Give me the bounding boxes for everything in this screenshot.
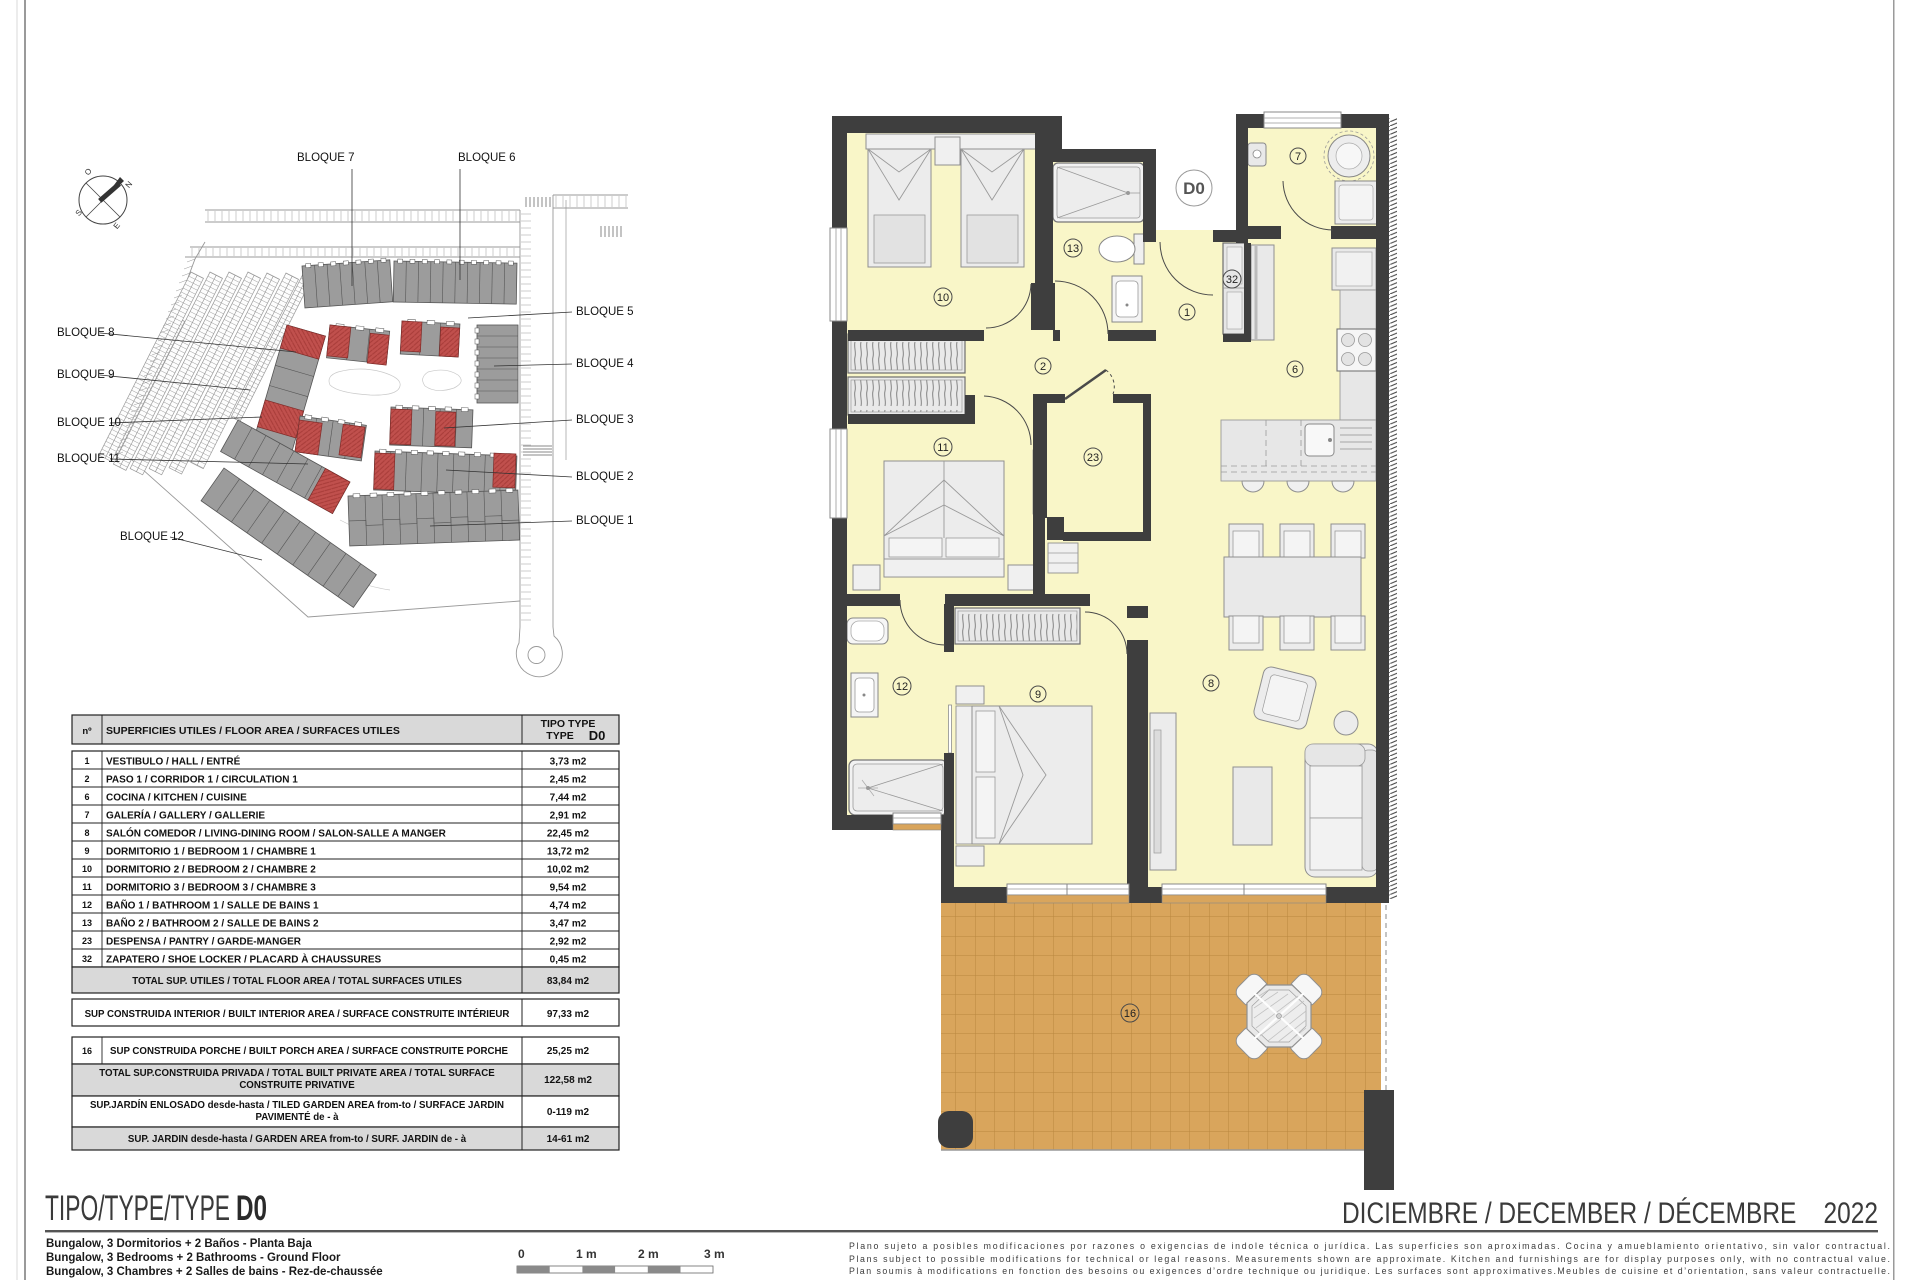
svg-text:SUP CONSTRUIDA PORCHE / BUILT: SUP CONSTRUIDA PORCHE / BUILT PORCH AREA… (110, 1046, 508, 1057)
svg-text:BLOQUE 12: BLOQUE 12 (120, 531, 184, 543)
svg-text:97,33 m2: 97,33 m2 (547, 1009, 590, 1020)
svg-text:1 m: 1 m (576, 1247, 597, 1261)
svg-text:DORMITORIO 2 / BEDROOM 2 / CHA: DORMITORIO 2 / BEDROOM 2 / CHAMBRE 2 (106, 865, 316, 876)
svg-text:7: 7 (84, 810, 89, 820)
svg-text:BLOQUE 8: BLOQUE 8 (57, 327, 115, 339)
svg-text:12: 12 (896, 681, 908, 693)
svg-text:BLOQUE 2: BLOQUE 2 (576, 471, 634, 483)
svg-text:TIPO TYPE: TIPO TYPE (541, 718, 596, 730)
svg-text:2,92 m2: 2,92 m2 (550, 937, 587, 948)
svg-text:Plans subject to possible modi: Plans subject to possible modifications … (849, 1254, 1890, 1264)
svg-text:9: 9 (84, 846, 89, 856)
svg-text:SUPERFICIES UTILES / FLOOR ARE: SUPERFICIES UTILES / FLOOR AREA / SURFAC… (106, 725, 400, 737)
svg-text:Bungalow, 3 Bedrooms + 2 Bathr: Bungalow, 3 Bedrooms + 2 Bathrooms - Gro… (46, 1252, 341, 1264)
svg-text:13: 13 (82, 918, 92, 928)
svg-text:9: 9 (1035, 689, 1041, 701)
svg-text:BLOQUE 7: BLOQUE 7 (297, 152, 355, 164)
svg-text:122,58 m2: 122,58 m2 (544, 1075, 592, 1086)
svg-text:4,74 m2: 4,74 m2 (550, 901, 587, 912)
svg-text:nº: nº (82, 726, 92, 737)
svg-text:BLOQUE 6: BLOQUE 6 (458, 152, 516, 164)
svg-text:COCINA / KITCHEN / CUISINE: COCINA / KITCHEN / CUISINE (106, 793, 247, 804)
svg-text:PASO 1 / CORRIDOR 1 / CIRCULAT: PASO 1 / CORRIDOR 1 / CIRCULATION 1 (106, 775, 298, 786)
svg-text:23: 23 (82, 936, 92, 946)
svg-text:D0: D0 (236, 1189, 267, 1228)
svg-text:11: 11 (82, 882, 92, 892)
svg-text:D0: D0 (1183, 179, 1205, 198)
svg-text:BLOQUE 4: BLOQUE 4 (576, 358, 634, 370)
svg-text:83,84 m2: 83,84 m2 (547, 976, 590, 987)
svg-text:16: 16 (82, 1046, 92, 1056)
svg-text:2 m: 2 m (638, 1247, 659, 1261)
svg-text:25,25 m2: 25,25 m2 (547, 1046, 590, 1057)
svg-text:BLOQUE 5: BLOQUE 5 (576, 306, 634, 318)
svg-text:SUP CONSTRUIDA INTERIOR / BUIL: SUP CONSTRUIDA INTERIOR / BUILT INTERIOR… (85, 1009, 510, 1020)
svg-text:Bungalow, 3 Chambres + 2 Salle: Bungalow, 3 Chambres + 2 Salles de bains… (46, 1266, 383, 1278)
svg-text:16: 16 (1124, 1008, 1136, 1020)
svg-text:8: 8 (84, 828, 89, 838)
svg-text:6: 6 (84, 792, 89, 802)
svg-text:DORMITORIO 1 / BEDROOM 1 / CHA: DORMITORIO 1 / BEDROOM 1 / CHAMBRE 1 (106, 847, 316, 858)
svg-text:7: 7 (1295, 151, 1301, 163)
svg-text:8: 8 (1208, 678, 1214, 690)
svg-text:0: 0 (518, 1247, 525, 1261)
svg-text:12: 12 (82, 900, 92, 910)
svg-text:2,45 m2: 2,45 m2 (550, 775, 587, 786)
svg-text:7,44 m2: 7,44 m2 (550, 793, 587, 804)
svg-text:VESTIBULO / HALL / ENTRÉ: VESTIBULO / HALL / ENTRÉ (106, 755, 241, 768)
svg-text:BLOQUE 3: BLOQUE 3 (576, 414, 634, 426)
svg-text:Bungalow, 3 Dormitorios + 2 Ba: Bungalow, 3 Dormitorios + 2 Baños - Plan… (46, 1238, 312, 1250)
svg-text:TIPO/TYPE/TYPE: TIPO/TYPE/TYPE (45, 1189, 230, 1228)
svg-text:0-119 m2: 0-119 m2 (547, 1107, 590, 1118)
svg-text:BAÑO 1 / BATHROOM 1 / SALLE DE: BAÑO 1 / BATHROOM 1 / SALLE DE BAINS 1 (106, 899, 319, 912)
svg-text:SALÓN COMEDOR / LIVING-DINING: SALÓN COMEDOR / LIVING-DINING ROOM / SAL… (106, 827, 447, 840)
svg-text:DORMITORIO 3 / BEDROOM 3 / CHA: DORMITORIO 3 / BEDROOM 3 / CHAMBRE 3 (106, 883, 316, 894)
svg-text:BLOQUE 11: BLOQUE 11 (57, 453, 120, 465)
svg-text:SUP. JARDIN desde-hasta / GARD: SUP. JARDIN desde-hasta / GARDEN AREA fr… (128, 1134, 467, 1145)
svg-text:14-61 m2: 14-61 m2 (547, 1134, 590, 1145)
svg-text:13: 13 (1067, 243, 1079, 255)
svg-text:0,45 m2: 0,45 m2 (550, 955, 587, 966)
svg-text:1: 1 (84, 756, 89, 766)
svg-text:32: 32 (82, 954, 92, 964)
svg-text:D0: D0 (589, 728, 606, 743)
svg-text:ZAPATERO / SHOE LOCKER / PLACA: ZAPATERO / SHOE LOCKER / PLACARD À CHAUS… (106, 953, 382, 966)
svg-text:9,54 m2: 9,54 m2 (550, 883, 587, 894)
svg-text:BLOQUE 10: BLOQUE 10 (57, 417, 121, 429)
svg-text:22,45 m2: 22,45 m2 (547, 829, 590, 840)
svg-text:3,73 m2: 3,73 m2 (550, 757, 587, 768)
svg-text:1: 1 (1184, 307, 1190, 319)
svg-text:BLOQUE 1: BLOQUE 1 (576, 515, 634, 527)
svg-text:Plan soumis à modifications en: Plan soumis à modifications en fonction … (849, 1266, 1890, 1276)
svg-text:10: 10 (937, 292, 949, 304)
svg-text:TYPE: TYPE (546, 730, 573, 742)
svg-text:SUP.JARDÍN ENLOSADO desde-hast: SUP.JARDÍN ENLOSADO desde-hasta / TILED … (90, 1100, 504, 1111)
svg-text:13,72 m2: 13,72 m2 (547, 847, 590, 858)
svg-text:2: 2 (1040, 361, 1046, 373)
svg-text:GALERÍA / GALLERY / GALLERIE: GALERÍA / GALLERY / GALLERIE (106, 809, 265, 822)
svg-text:DESPENSA / PANTRY / GARDE-MANG: DESPENSA / PANTRY / GARDE-MANGER (106, 937, 302, 948)
svg-text:6: 6 (1292, 364, 1298, 376)
svg-text:32: 32 (1226, 274, 1238, 286)
svg-text:10,02 m2: 10,02 m2 (547, 865, 590, 876)
svg-text:BLOQUE 9: BLOQUE 9 (57, 369, 115, 381)
svg-text:2,91 m2: 2,91 m2 (550, 811, 587, 822)
svg-text:CONSTRUITE PRIVATIVE: CONSTRUITE PRIVATIVE (239, 1080, 355, 1091)
svg-text:11: 11 (937, 442, 948, 454)
svg-text:BAÑO 2 / BATHROOM 2 / SALLE DE: BAÑO 2 / BATHROOM 2 / SALLE DE BAINS 2 (106, 917, 319, 930)
svg-text:PAVIMENTÉ de - à: PAVIMENTÉ de - à (255, 1112, 339, 1123)
svg-text:10: 10 (82, 864, 92, 874)
svg-text:3 m: 3 m (704, 1247, 725, 1261)
svg-text:TOTAL SUP.CONSTRUIDA PRIVADA /: TOTAL SUP.CONSTRUIDA PRIVADA / TOTAL BUI… (99, 1068, 495, 1079)
svg-text:23: 23 (1087, 452, 1099, 464)
svg-text:DICIEMBRE / DECEMBER / DÉCEMBR: DICIEMBRE / DECEMBER / DÉCEMBRE 2022 (1342, 1197, 1878, 1230)
svg-text:3,47 m2: 3,47 m2 (550, 919, 587, 930)
svg-text:2: 2 (84, 774, 89, 784)
svg-text:TOTAL SUP. UTILES / TOTAL FLOO: TOTAL SUP. UTILES / TOTAL FLOOR AREA / T… (132, 976, 462, 987)
